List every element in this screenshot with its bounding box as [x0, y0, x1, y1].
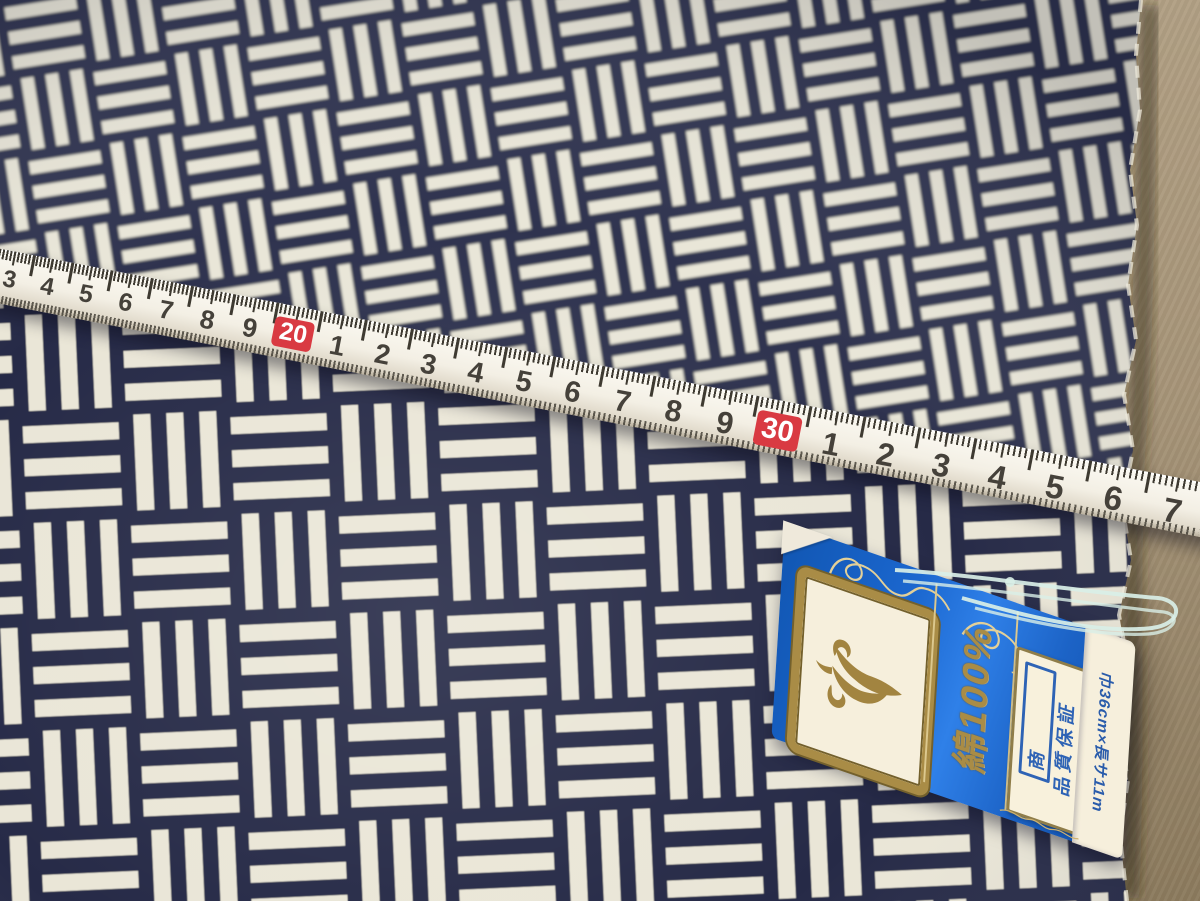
tape-mark: 3	[909, 427, 975, 491]
size-label: 巾36cm×長サ11m	[1088, 669, 1120, 817]
tape-mark: 2	[854, 417, 919, 481]
tape-number: 4	[25, 270, 69, 305]
plant-crest-icon	[811, 622, 915, 742]
tape-number: 5	[63, 277, 108, 312]
tape-decade-badge: 20	[271, 316, 316, 353]
tape-mark: 4	[965, 438, 1032, 502]
product-field-label: 商	[1022, 746, 1049, 774]
tape-mark: 1	[800, 406, 864, 470]
tape-mark: 6	[1079, 461, 1148, 525]
tape-mark: 7	[1138, 472, 1200, 537]
tape-number: 6	[102, 285, 148, 321]
photo-stage: 345678920123456789301234567 綿100%	[0, 0, 1200, 901]
cotton-100-text: 綿100%	[940, 615, 1001, 778]
cotton-100-label: 綿100%	[923, 583, 1019, 810]
tape-mark: 5	[1021, 449, 1089, 513]
